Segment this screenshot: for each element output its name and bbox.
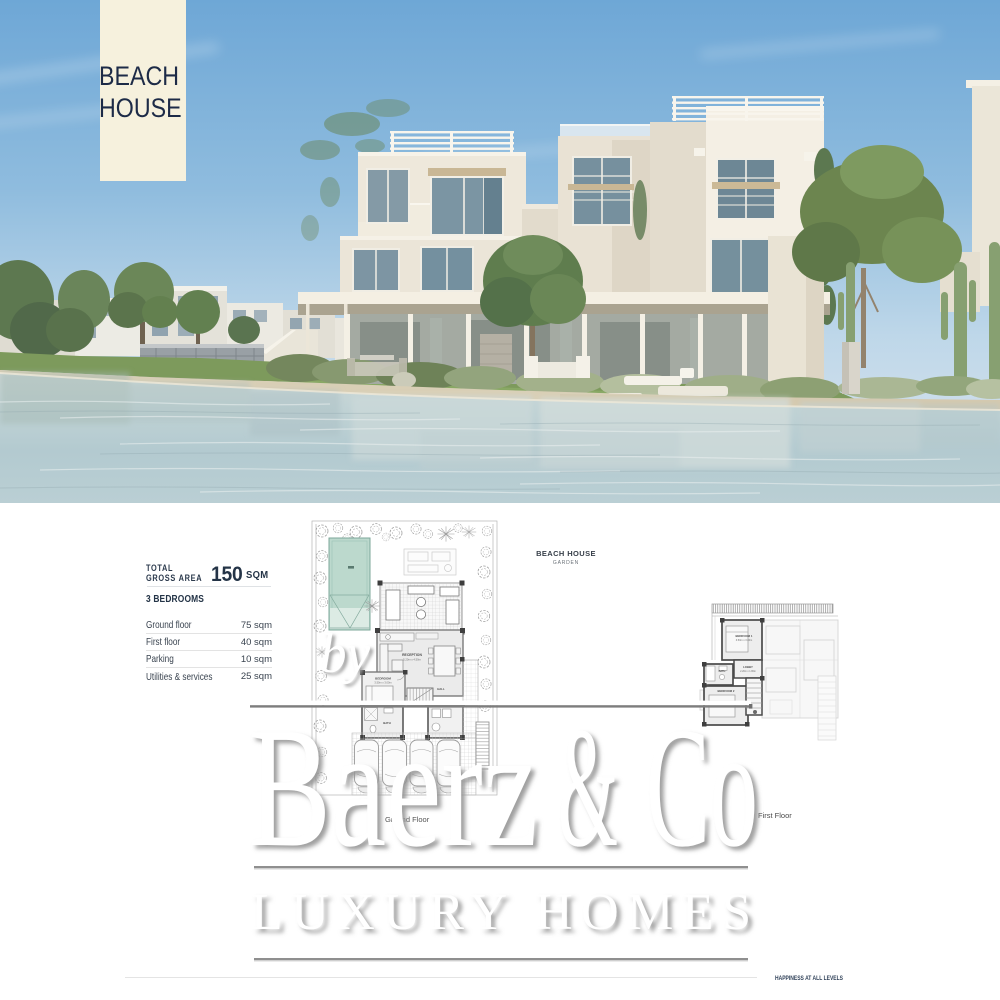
svg-text:LUXURY HOMES: LUXURY HOMES xyxy=(251,884,751,941)
svg-text:&: & xyxy=(558,693,618,883)
svg-text:GARDEN: GARDEN xyxy=(553,560,579,566)
svg-text:RECEPTION: RECEPTION xyxy=(402,653,422,657)
svg-text:Co: Co xyxy=(646,693,758,883)
svg-text:Baerz: Baerz xyxy=(248,693,538,883)
svg-text:LOBBY: LOBBY xyxy=(743,665,753,669)
svg-text:2.20m x 1.80m: 2.20m x 1.80m xyxy=(740,670,756,673)
svg-text:BEACH HOUSE: BEACH HOUSE xyxy=(536,549,596,558)
svg-text:HAPPINESS AT ALL LEVELS: HAPPINESS AT ALL LEVELS xyxy=(775,976,843,982)
svg-text:BATH: BATH xyxy=(719,670,726,673)
svg-text:BEDROOM 1: BEDROOM 1 xyxy=(736,634,753,638)
svg-text:by: by xyxy=(320,623,370,685)
svg-text:HALL: HALL xyxy=(437,687,445,691)
svg-text:3.50m x 3.00m: 3.50m x 3.00m xyxy=(374,681,391,685)
svg-text:BEDROOM: BEDROOM xyxy=(375,677,391,681)
svg-text:3.50m x 3.00m: 3.50m x 3.00m xyxy=(736,639,753,642)
svg-text:5.20m x 4.50m: 5.20m x 4.50m xyxy=(403,658,422,662)
svg-text:First Floor: First Floor xyxy=(758,811,792,820)
